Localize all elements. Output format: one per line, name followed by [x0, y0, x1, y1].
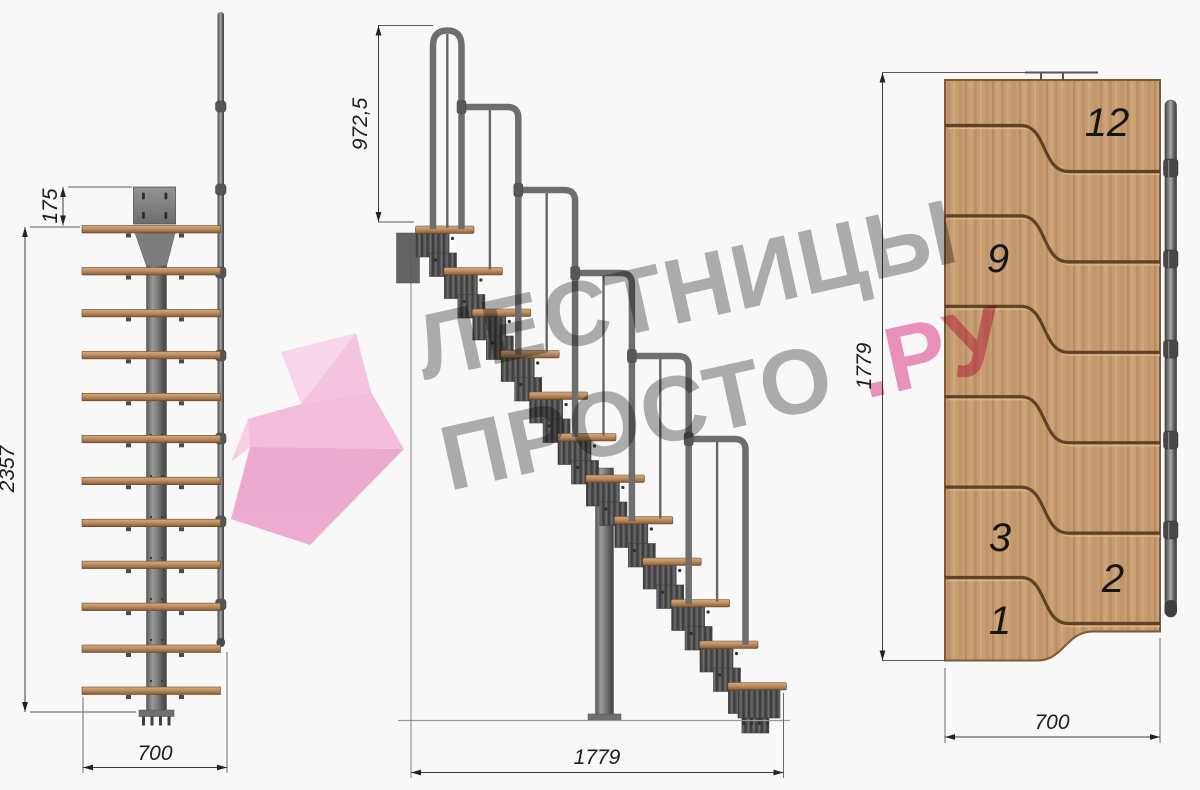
logo-facet — [231, 419, 250, 462]
staircase-drawing: 12 9 3 2 1 175 2357 700 972,5 1779 — [0, 0, 1200, 790]
step-number-1: 1 — [989, 599, 1011, 643]
dim-text-175: 175 — [39, 188, 62, 223]
bottom-module — [738, 690, 780, 718]
dim-text-700-plan: 700 — [1034, 711, 1069, 734]
side-column-base — [588, 714, 621, 720]
watermark-logo — [231, 333, 404, 545]
front-central-column — [147, 233, 167, 712]
step-number-9: 9 — [987, 237, 1009, 281]
drawing-canvas: 12 9 3 2 1 175 2357 700 972,5 1779 — [0, 0, 1200, 790]
logo-facet — [248, 392, 404, 449]
step-number-3: 3 — [989, 516, 1011, 560]
column-base-plate — [139, 710, 174, 717]
front-view — [82, 12, 226, 726]
step-number-2: 2 — [1101, 557, 1124, 601]
logo-facet — [231, 447, 404, 545]
plan-handrail — [1164, 100, 1179, 617]
plan-handrail-end — [1165, 600, 1178, 617]
step-number-12: 12 — [1085, 101, 1130, 145]
dim-text-972: 972,5 — [349, 97, 372, 150]
dim-text-2357: 2357 — [0, 444, 19, 493]
watermark-text: ЛЕСТНИЦЫ ПРОСТО .РУ — [406, 180, 1015, 510]
column-taper — [135, 233, 175, 266]
plan-top-bracket — [1025, 73, 1098, 81]
top-mounting-plate — [134, 187, 176, 224]
dim-text-700-front: 700 — [137, 742, 172, 765]
dim-text-1779-side: 1779 — [574, 746, 621, 769]
column-base-bolts — [142, 717, 171, 726]
